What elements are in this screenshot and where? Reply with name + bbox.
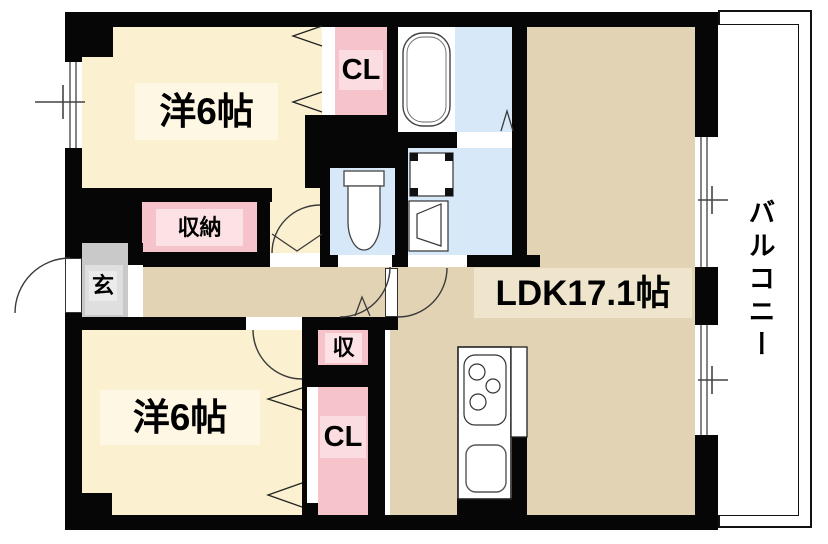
wall-bottom — [65, 515, 718, 530]
storage-small-label: 収 — [325, 333, 362, 363]
entrance-step-edge — [128, 265, 143, 317]
entrance-door-leaf — [65, 258, 82, 313]
wall-block-center — [320, 115, 398, 168]
window-bedroom-top — [65, 62, 82, 148]
hallway-floor — [128, 265, 390, 317]
closet-top-text: CL — [342, 56, 381, 85]
wall-washroom-ldk — [512, 27, 527, 267]
wall-below-bedroom-top — [82, 188, 272, 202]
wall-hall-south — [80, 317, 398, 330]
ldk-floor-upper — [526, 27, 695, 267]
ldk-label: LDK17.1帖 — [474, 268, 692, 318]
bedroom-top-door-opening — [270, 253, 320, 267]
pillar-top-left — [65, 12, 113, 57]
closet-top-door — [322, 27, 335, 115]
entrance-text: 玄 — [92, 275, 114, 297]
window-ldk-1 — [695, 137, 718, 267]
storage-text: 収納 — [177, 217, 221, 239]
bedroom-bottom-door-opening — [246, 317, 302, 330]
wall-kitchen-base — [457, 498, 527, 517]
entrance-door-arc — [15, 258, 70, 313]
ldk-door-leaf — [385, 268, 398, 317]
balcony-text: バルコニー — [741, 198, 780, 363]
bedroom-top-alcove-floor — [270, 188, 320, 254]
pillar-bottom-left — [82, 493, 112, 515]
wall-bedroom-top-right — [305, 115, 320, 188]
balcony-label: バルコニー — [730, 145, 790, 415]
bedroom-bottom-label: 洋6帖 — [100, 390, 260, 445]
closet-bottom-text: CL — [324, 423, 363, 452]
bathtub-platform — [398, 27, 455, 132]
closet-top-label: CL — [339, 50, 383, 90]
window-ldk-2 — [695, 325, 718, 435]
closet-bottom-label: CL — [320, 416, 366, 458]
toilet-room-floor — [330, 168, 395, 255]
bedroom-bottom-text: 洋6帖 — [133, 399, 228, 436]
wall-storage-bottom — [140, 252, 257, 267]
storage-small-text: 収 — [332, 337, 354, 359]
entrance-label: 玄 — [89, 271, 117, 301]
wall-toilet-washroom — [395, 148, 408, 255]
bedroom-top-text: 洋6帖 — [159, 93, 254, 130]
closet-bottom-door — [307, 387, 318, 503]
wall-toilet-left — [320, 168, 330, 267]
storage-label: 収納 — [156, 209, 243, 246]
wall-closet-col-lowtip — [307, 503, 318, 515]
washroom-door-opening — [408, 255, 467, 267]
bathroom-door-opening — [457, 132, 512, 148]
wall-top — [65, 12, 718, 27]
wall-right — [695, 12, 718, 530]
wall-closet-top-right — [387, 27, 398, 115]
toilet-door-opening — [338, 255, 392, 267]
wall-above-entrance — [82, 202, 142, 243]
washroom-floor — [408, 148, 512, 255]
floor-plan: 洋6帖 洋6帖 LDK17.1帖 CL CL 収納 収 玄 バルコニー — [0, 0, 828, 544]
ldk-text: LDK17.1帖 — [495, 276, 670, 311]
bedroom-top-label: 洋6帖 — [135, 83, 278, 140]
wall-closet-col-right — [368, 330, 385, 515]
wall-storage-right — [257, 202, 270, 267]
